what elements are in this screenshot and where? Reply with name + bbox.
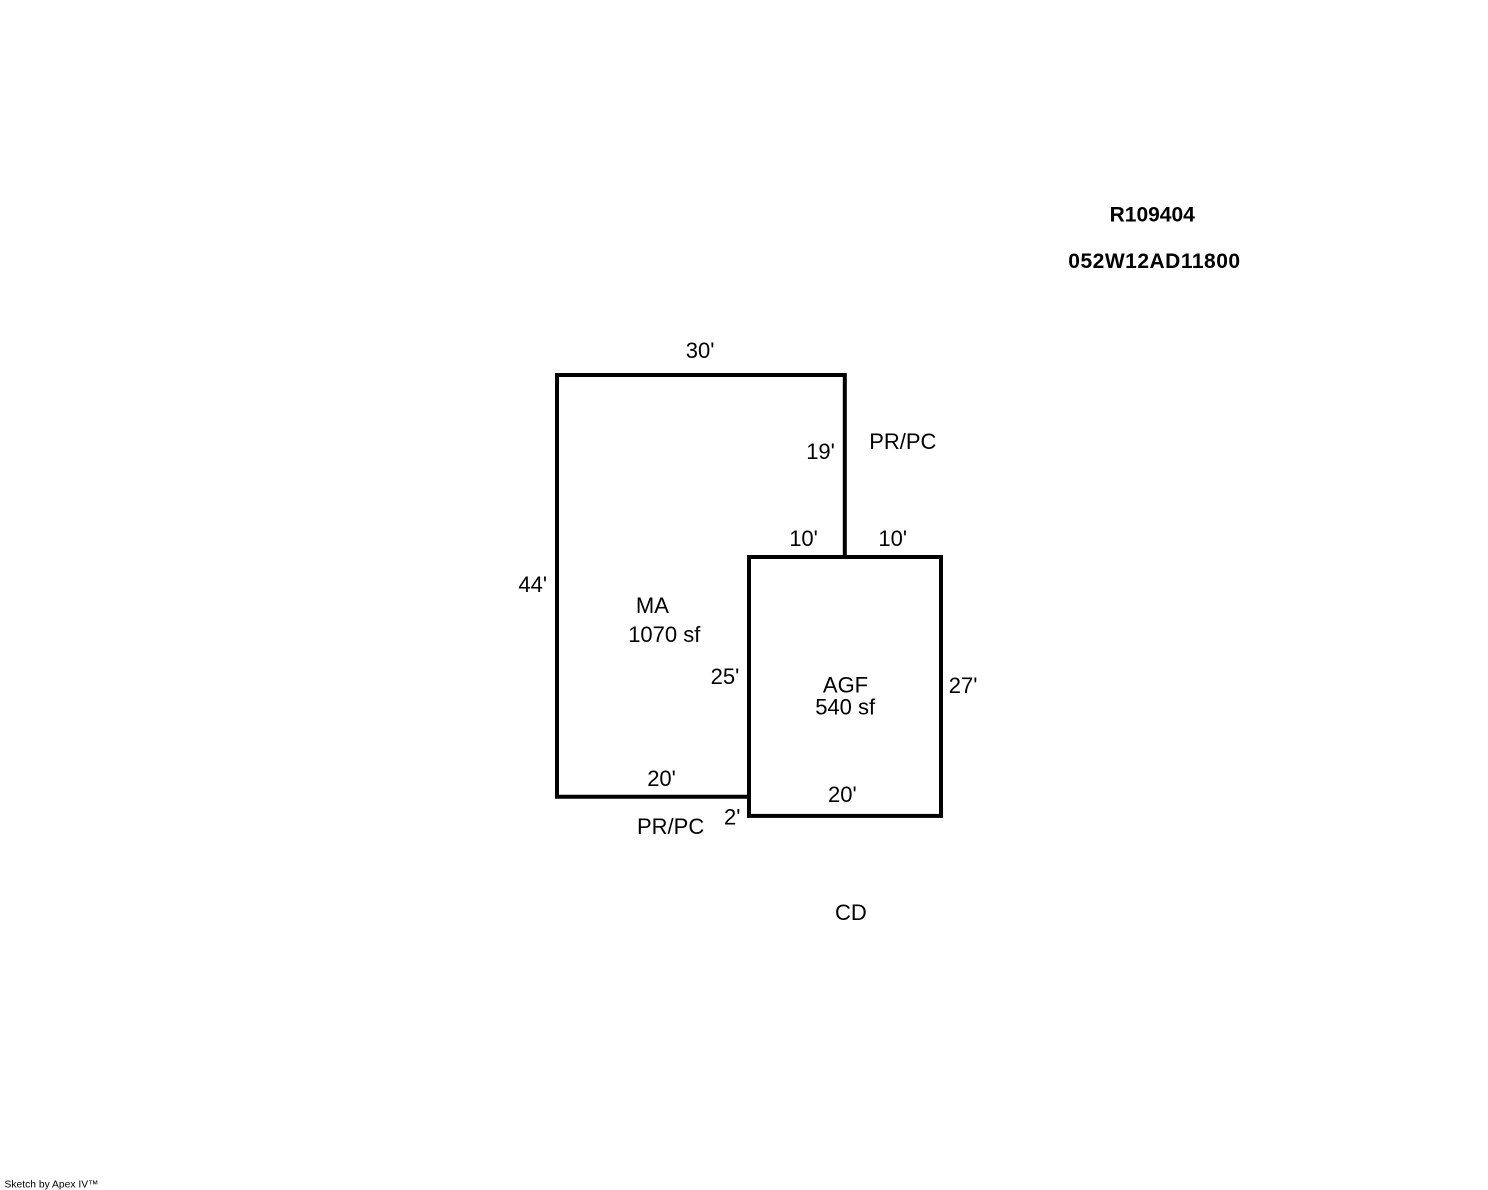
svg-text:MA: MA [636, 593, 669, 618]
svg-text:PR/PC: PR/PC [869, 429, 936, 454]
svg-text:19': 19' [806, 439, 835, 464]
svg-text:CD: CD [835, 900, 867, 925]
svg-text:25': 25' [711, 664, 740, 689]
svg-text:2': 2' [724, 805, 740, 830]
svg-text:44': 44' [518, 572, 547, 597]
svg-text:20': 20' [647, 766, 676, 791]
svg-text:R109404: R109404 [1110, 204, 1196, 227]
svg-text:10': 10' [878, 526, 907, 551]
svg-text:30': 30' [686, 338, 715, 363]
svg-text:20': 20' [828, 782, 857, 807]
svg-text:PR/PC: PR/PC [637, 814, 704, 839]
svg-text:10': 10' [789, 526, 818, 551]
svg-text:27': 27' [949, 673, 978, 698]
svg-text:052W12AD11800: 052W12AD11800 [1068, 250, 1240, 273]
svg-text:Sketch by Apex IV™: Sketch by Apex IV™ [5, 1180, 99, 1190]
svg-text:540 sf: 540 sf [815, 695, 876, 720]
svg-text:1070 sf: 1070 sf [628, 622, 701, 647]
